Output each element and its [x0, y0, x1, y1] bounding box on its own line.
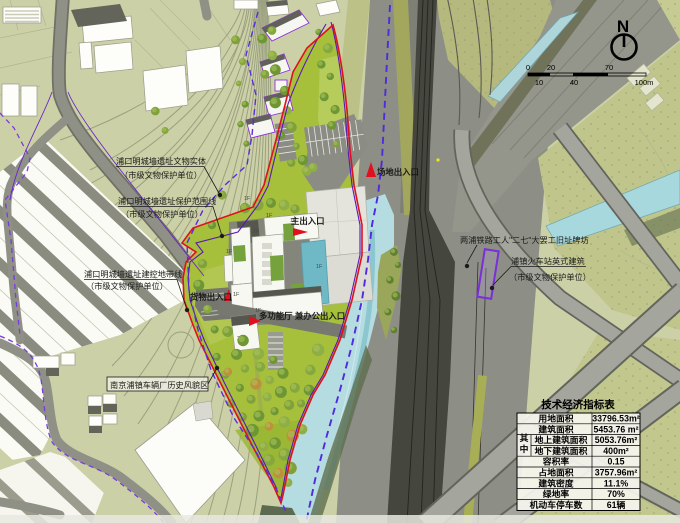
svg-text:南京浦镇车辆厂历史风貌区: 南京浦镇车辆厂历史风貌区 [110, 380, 208, 390]
svg-text:容积率: 容积率 [542, 456, 570, 467]
svg-text:3757.96m²: 3757.96m² [595, 468, 638, 478]
svg-text:场地出入口: 场地出入口 [377, 167, 419, 177]
svg-text:技术经济指标表: 技术经济指标表 [541, 398, 615, 411]
svg-text:两浦铁路工人"二七"大罢工旧址牌坊: 两浦铁路工人"二七"大罢工旧址牌坊 [460, 235, 589, 245]
svg-text:1F: 1F [233, 292, 240, 298]
svg-text:货物出入口: 货物出入口 [189, 292, 232, 302]
svg-text:（市级文物保护单位）: （市级文物保护单位） [121, 209, 203, 219]
svg-text:绿地率: 绿地率 [543, 488, 570, 499]
svg-text:1F: 1F [226, 249, 233, 255]
svg-text:用地面积: 用地面积 [538, 413, 573, 424]
svg-text:（市级文物保护单位）: （市级文物保护单位） [509, 272, 591, 282]
svg-text:20: 20 [547, 63, 555, 72]
svg-text:N: N [617, 17, 629, 36]
svg-text:5453.76 m²: 5453.76 m² [594, 424, 639, 434]
svg-text:地下建筑面积: 地下建筑面积 [535, 445, 588, 456]
svg-text:建筑面积: 建筑面积 [537, 423, 573, 434]
svg-text:多功能厅 兼办公出入口: 多功能厅 兼办公出入口 [259, 311, 345, 321]
svg-text:1F: 1F [244, 196, 251, 202]
svg-text:浦镇火车站英式建筑: 浦镇火车站英式建筑 [511, 256, 585, 266]
svg-text:浦口明城墙遗址建控地带线: 浦口明城墙遗址建控地带线 [84, 269, 182, 279]
svg-text:11.1%: 11.1% [604, 478, 629, 488]
svg-text:中: 中 [520, 443, 529, 454]
svg-text:61辆: 61辆 [607, 499, 626, 510]
svg-text:5053.76m²: 5053.76m² [595, 435, 638, 445]
svg-text:0.15: 0.15 [607, 457, 624, 467]
svg-text:机动车停车数: 机动车停车数 [530, 499, 583, 510]
svg-text:地上建筑面积: 地上建筑面积 [535, 434, 588, 445]
svg-text:40: 40 [570, 78, 578, 87]
svg-text:70: 70 [605, 63, 613, 72]
svg-text:10: 10 [535, 78, 543, 87]
svg-text:建筑密度: 建筑密度 [537, 477, 573, 488]
svg-text:0: 0 [526, 63, 530, 72]
svg-text:浦口明城墙遗址保护范围线: 浦口明城墙遗址保护范围线 [118, 196, 216, 206]
svg-text:占地面积: 占地面积 [538, 467, 573, 478]
svg-text:100m: 100m [635, 78, 654, 87]
svg-text:400m²: 400m² [603, 446, 628, 456]
svg-text:1F: 1F [316, 264, 323, 270]
svg-text:2F: 2F [253, 229, 260, 235]
svg-text:1F: 1F [266, 213, 273, 219]
svg-text:33796.53m²: 33796.53m² [592, 414, 640, 424]
svg-text:主出入口: 主出入口 [291, 216, 325, 226]
svg-text:其: 其 [520, 432, 529, 443]
svg-text:70%: 70% [607, 489, 625, 499]
svg-text:浦口明城墙遗址文物实体: 浦口明城墙遗址文物实体 [116, 156, 206, 166]
svg-text:（市级文物保护单位）: （市级文物保护单位） [86, 281, 168, 291]
svg-text:（市级文物保护单位）: （市级文物保护单位） [120, 170, 202, 180]
